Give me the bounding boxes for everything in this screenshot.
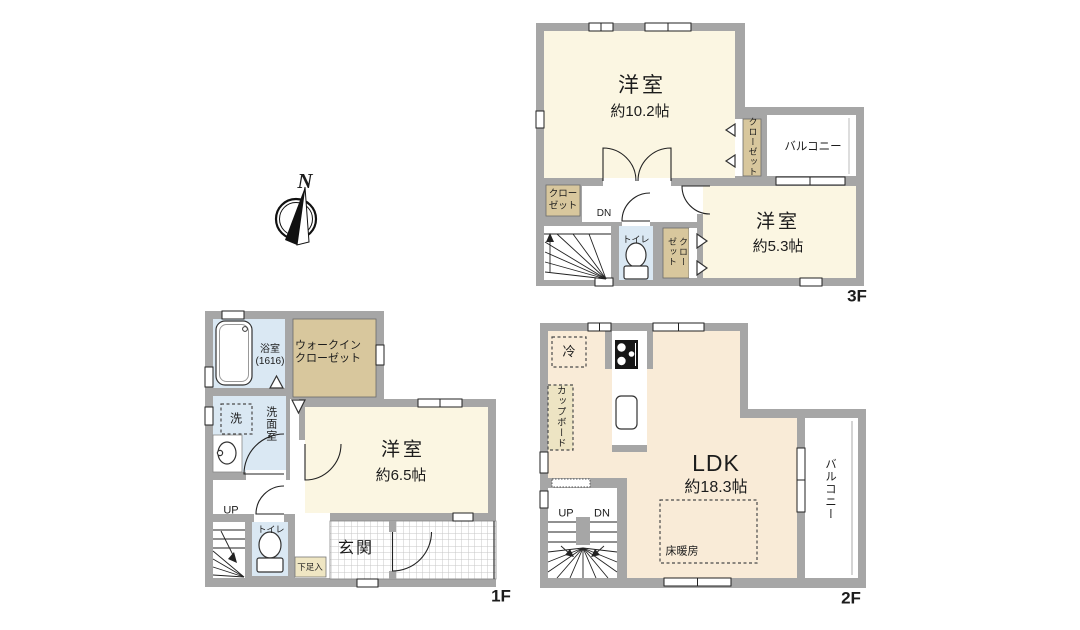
up-label-2f: UP bbox=[558, 507, 573, 520]
shoe-cabinet-label-1f: 下足入 bbox=[297, 562, 323, 572]
floor-label-3f: 3F bbox=[847, 287, 867, 308]
door-stub-bottom bbox=[389, 571, 396, 579]
closet-wall-doors-3f bbox=[735, 119, 743, 176]
stove-icon bbox=[615, 340, 638, 369]
compass-north-label: N bbox=[297, 169, 312, 195]
toilet-fixture-1f bbox=[257, 532, 283, 572]
bedroom-name-1f: 洋室 bbox=[381, 438, 425, 461]
bedroom-small-name-3f: 洋室 bbox=[756, 210, 800, 233]
bedroom-size-1f: 約6.5帖 bbox=[376, 467, 427, 485]
ldk-size-2f: 約18.3帖 bbox=[684, 478, 747, 498]
bath-label-1f: 浴室 (1616) bbox=[256, 344, 285, 368]
fridge-label-2f: 冷 bbox=[562, 344, 575, 360]
balcony-label-2f: バルコニー bbox=[823, 458, 837, 521]
bedroom-main-name-3f: 洋室 bbox=[618, 73, 666, 99]
toilet-fixture-3f bbox=[624, 243, 648, 279]
floor-label-1f: 1F bbox=[491, 587, 511, 608]
washbasin-1f bbox=[213, 435, 242, 472]
closet-hall-doors-3f bbox=[689, 228, 697, 278]
closet-hall-label-3f: クローゼット bbox=[666, 235, 688, 269]
room-ldk-east-2f bbox=[738, 418, 797, 578]
closet-left-label-3f: クローゼット bbox=[546, 188, 580, 211]
cupboard-label-2f: カップボード bbox=[554, 386, 566, 449]
entrance-label-1f: 玄関 bbox=[338, 539, 374, 559]
dn-label-3f: DN bbox=[597, 208, 611, 220]
floor-heating-label-2f: 床暖房 bbox=[666, 545, 699, 558]
kitchen-sink bbox=[616, 396, 637, 429]
washer-label-1f: 洗 bbox=[230, 412, 242, 427]
floor-label-2f: 2F bbox=[841, 589, 861, 610]
toilet-label-3f: トイレ bbox=[622, 235, 649, 246]
washroom-label-1f: 洗面室 bbox=[263, 406, 276, 442]
stairs-2f bbox=[540, 478, 627, 588]
floorplan-page: N 洋室 約10.2帖 クローゼット バルコニー クローゼット DN トイレ ク… bbox=[0, 0, 1080, 630]
up-label-1f: UP bbox=[223, 504, 238, 517]
compass-icon bbox=[276, 187, 316, 245]
wic-label-1f: ウォークインクローゼット bbox=[292, 340, 364, 367]
kitchen-2f bbox=[605, 331, 653, 452]
floorplan-drawing bbox=[0, 0, 1080, 630]
toilet-label-1f: トイレ bbox=[257, 525, 284, 536]
bath-fixture-1f bbox=[216, 321, 252, 385]
bedroom-main-size-3f: 約10.2帖 bbox=[610, 103, 669, 121]
dn-label-2f: DN bbox=[594, 507, 610, 520]
closet-wall-label-3f: クローゼット bbox=[747, 117, 758, 177]
ldk-name-2f: LDK bbox=[692, 449, 740, 477]
door-stub-top bbox=[389, 521, 396, 532]
plan-3f bbox=[536, 23, 864, 286]
balcony-label-3f: バルコニー bbox=[784, 140, 841, 154]
bedroom-small-size-3f: 約5.3帖 bbox=[753, 238, 804, 256]
